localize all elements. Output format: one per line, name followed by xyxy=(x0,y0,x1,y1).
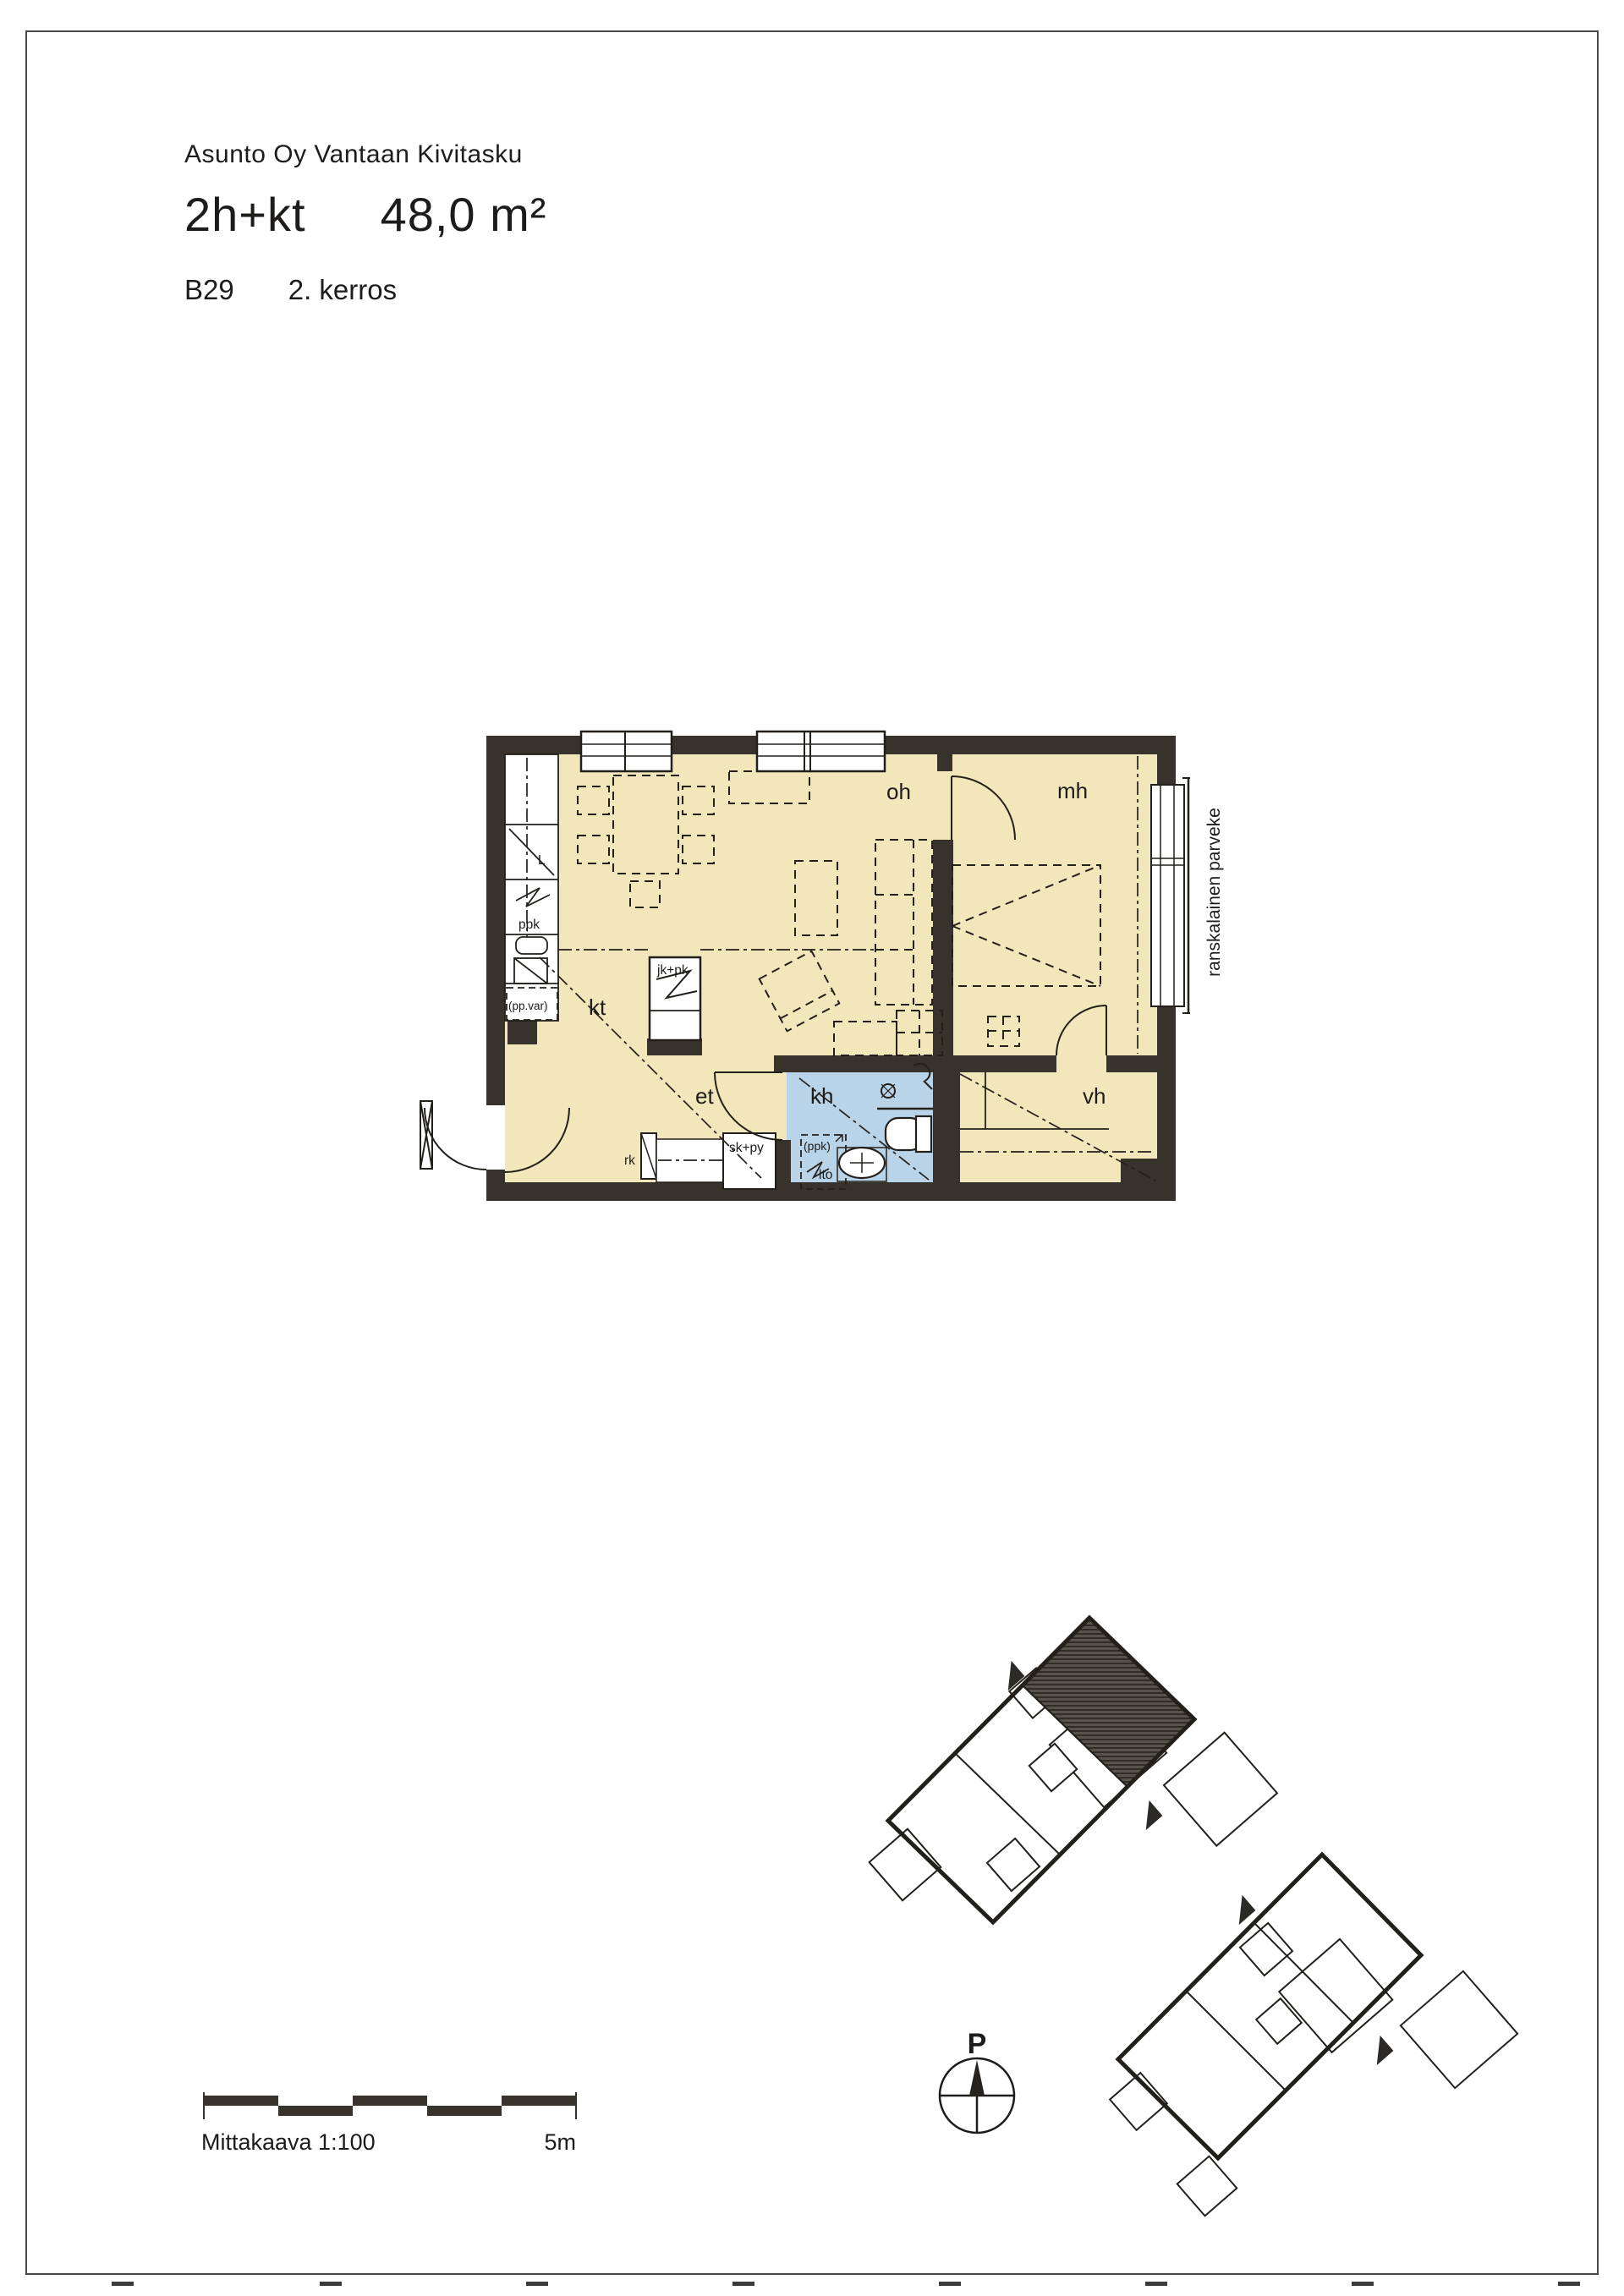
floor-label: 2. kerros xyxy=(288,274,397,305)
floorplan-sheet: Asunto Oy Vantaan Kivitasku 2h+kt48,0 m²… xyxy=(0,0,1624,2296)
room-label-vh: vh xyxy=(1083,1083,1106,1109)
scan-tick xyxy=(1145,2282,1167,2286)
scan-tick xyxy=(732,2282,754,2286)
entrance-arrow-icon xyxy=(1363,2036,1393,2065)
label-stove: L xyxy=(538,853,546,868)
apartment-area: 48,0 m² xyxy=(381,188,547,241)
label-ppk: ppk xyxy=(518,918,540,932)
site-detached-block xyxy=(1164,1733,1277,1846)
balcony-label: ranskalainen parveke xyxy=(1204,808,1224,977)
entrance-arrow-icon xyxy=(1133,1800,1162,1830)
scale-bar: Mittakaava 1:100 5m xyxy=(152,2055,626,2173)
scan-tick xyxy=(939,2282,961,2286)
scan-tick xyxy=(1352,2282,1374,2286)
label-lto: lto xyxy=(819,1168,832,1182)
apartment-number-row: B292. kerros xyxy=(184,276,546,304)
housing-company-name: Asunto Oy Vantaan Kivitasku xyxy=(184,142,546,167)
entrance-opening xyxy=(486,1105,505,1170)
apartment-number: B29 xyxy=(184,274,234,305)
site-building-a xyxy=(870,1618,1277,1922)
room-label-oh: oh xyxy=(886,779,911,804)
apartment-type-row: 2h+kt48,0 m² xyxy=(184,191,546,238)
room-label-mh: mh xyxy=(1057,778,1088,803)
scale-bar-segments xyxy=(204,2096,576,2116)
site-plan: P xyxy=(846,1590,1565,2258)
entrance-arrow-icon xyxy=(1226,1895,1255,1925)
kitchen-counter xyxy=(505,754,558,1021)
scan-tick xyxy=(112,2282,134,2286)
room-label-kt: kt xyxy=(589,995,606,1020)
label-rk: rk xyxy=(624,1153,635,1168)
compass-north-label: P xyxy=(968,2028,987,2060)
scale-end-label: 5m xyxy=(544,2129,576,2155)
label-ppk-paren: (ppk) xyxy=(804,1139,831,1153)
label-pp-var: (pp.var) xyxy=(508,1000,548,1012)
header: Asunto Oy Vantaan Kivitasku 2h+kt48,0 m²… xyxy=(184,142,546,304)
toilet-icon xyxy=(886,1116,931,1152)
scan-tick xyxy=(526,2282,548,2286)
room-label-et: et xyxy=(695,1083,714,1109)
french-balcony-window-icon xyxy=(1151,778,1190,1013)
site-building-b xyxy=(1110,1855,1517,2216)
north-arrow-icon: P xyxy=(940,2028,1014,2133)
label-jk-pk: jk+pk xyxy=(656,963,689,978)
scale-label: Mittakaava 1:100 xyxy=(201,2129,376,2155)
room-label-kh: kh xyxy=(810,1083,833,1109)
site-detached-block xyxy=(1401,1971,1517,2088)
apartment-type: 2h+kt xyxy=(184,188,306,241)
scan-tick xyxy=(320,2282,342,2286)
scan-tick xyxy=(1558,2282,1580,2286)
floor-plan-drawing: oh mh kt et kh vh L ppk (pp.var) jk+pk r… xyxy=(406,719,1252,1247)
label-sk-py: sk+py xyxy=(729,1141,764,1155)
